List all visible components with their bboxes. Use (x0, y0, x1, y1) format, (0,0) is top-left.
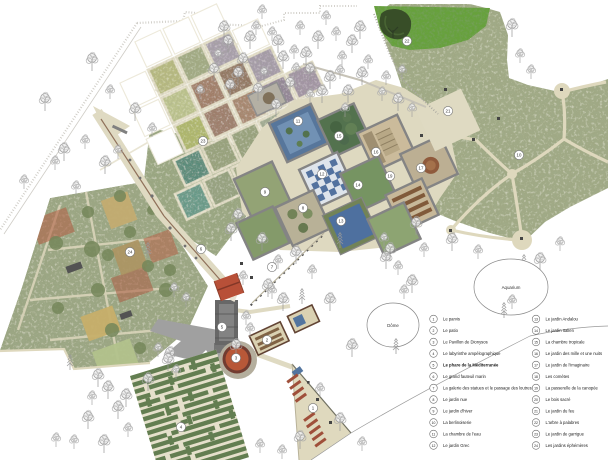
svg-text:14: 14 (356, 183, 361, 188)
svg-text:13: 13 (339, 219, 344, 224)
svg-text:9: 9 (433, 409, 435, 413)
svg-text:21: 21 (534, 409, 538, 413)
svg-text:10: 10 (432, 421, 436, 425)
svg-text:Le jardin Italien: Le jardin Italien (546, 328, 575, 333)
svg-text:La chambre tropicale: La chambre tropicale (546, 340, 586, 345)
svg-text:13: 13 (534, 317, 538, 321)
svg-text:Dôme: Dôme (387, 323, 399, 328)
svg-text:Le Pavillon de Dionysos: Le Pavillon de Dionysos (443, 340, 488, 345)
svg-text:La galerie des statues et le p: La galerie des statues et le passage des… (443, 386, 532, 391)
svg-text:Le jardin de garrigue: Le jardin de garrigue (546, 432, 585, 437)
svg-text:15: 15 (534, 340, 538, 344)
svg-text:16: 16 (374, 150, 379, 155)
svg-text:La passerelle de la canopée: La passerelle de la canopée (546, 386, 599, 391)
svg-text:Le labyrinthe ampélographique: Le labyrinthe ampélographique (443, 351, 501, 356)
svg-text:19: 19 (388, 174, 393, 179)
svg-text:17: 17 (419, 166, 424, 171)
svg-text:Le jardin des mille et une nui: Le jardin des mille et une nuits (546, 351, 603, 356)
svg-text:19: 19 (534, 386, 538, 390)
svg-text:2: 2 (433, 329, 435, 333)
svg-text:22: 22 (534, 421, 538, 425)
svg-text:Le bois sacré: Le bois sacré (546, 397, 572, 402)
svg-text:12: 12 (432, 444, 436, 448)
svg-text:Le jardin d'hiver: Le jardin d'hiver (443, 409, 473, 414)
svg-text:21: 21 (446, 109, 451, 114)
svg-text:22: 22 (405, 39, 410, 44)
svg-text:24: 24 (534, 444, 538, 448)
svg-text:Aquarium: Aquarium (502, 285, 521, 290)
svg-text:23: 23 (534, 432, 538, 436)
svg-text:La chambre de l'eau: La chambre de l'eau (443, 432, 481, 437)
svg-text:8: 8 (433, 398, 435, 402)
svg-text:Le jardin Andalou: Le jardin Andalou (546, 317, 579, 322)
svg-text:Le jardin Grec: Le jardin Grec (443, 443, 469, 448)
svg-text:Le jardin nue: Le jardin nue (443, 397, 468, 402)
svg-text:10: 10 (517, 153, 522, 158)
svg-text:1: 1 (433, 317, 435, 321)
svg-text:15: 15 (337, 134, 342, 139)
svg-text:7: 7 (433, 386, 435, 390)
svg-text:23: 23 (201, 139, 206, 144)
svg-text:Les comètes: Les comètes (546, 374, 570, 379)
svg-text:5: 5 (433, 363, 435, 367)
svg-text:11: 11 (432, 432, 436, 436)
svg-text:16: 16 (534, 352, 538, 356)
svg-text:24: 24 (128, 250, 133, 255)
svg-text:14: 14 (534, 329, 538, 333)
svg-text:Le jardin de l'imaginaire: Le jardin de l'imaginaire (546, 363, 591, 368)
svg-text:Le phare de la Méditerranée: Le phare de la Méditerranée (443, 363, 499, 368)
svg-text:Le grand fauteuil marin: Le grand fauteuil marin (443, 374, 487, 379)
svg-text:17: 17 (534, 363, 538, 367)
svg-text:Le patio: Le patio (443, 328, 459, 333)
svg-text:6: 6 (433, 375, 435, 379)
svg-text:4: 4 (433, 352, 435, 356)
svg-text:Le jardin du feu: Le jardin du feu (546, 409, 576, 414)
svg-text:11: 11 (296, 119, 301, 124)
svg-text:20: 20 (534, 398, 538, 402)
svg-text:La berlinoiserie: La berlinoiserie (443, 420, 472, 425)
svg-text:3: 3 (433, 340, 435, 344)
svg-text:L'arbre à palabres: L'arbre à palabres (546, 420, 580, 425)
svg-text:12: 12 (320, 172, 325, 177)
svg-text:Le parvis: Le parvis (443, 317, 460, 322)
svg-text:Les jardins éphémères: Les jardins éphémères (546, 443, 588, 448)
svg-text:18: 18 (534, 375, 538, 379)
